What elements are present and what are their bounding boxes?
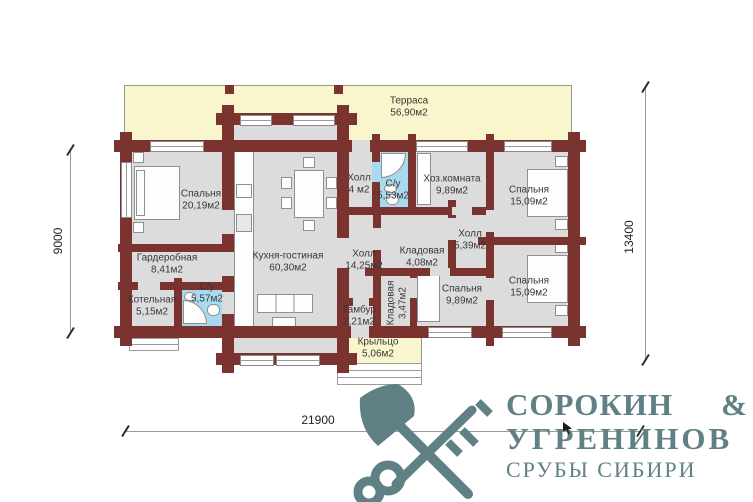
wall-segment xyxy=(118,244,234,252)
room-label-bath-2: С/у5,57м2 xyxy=(191,282,223,305)
window xyxy=(293,115,335,126)
room-label-vestibule: Тамбур2,21м2 xyxy=(342,305,376,328)
room-label-utility: Хоз.комната9,89м2 xyxy=(423,174,480,197)
stove-icon xyxy=(236,214,252,232)
door-opening xyxy=(410,278,417,298)
window xyxy=(428,327,472,338)
terrace-post xyxy=(334,85,343,94)
door-opening xyxy=(486,278,494,300)
sink-icon xyxy=(236,184,252,198)
nightstand-icon xyxy=(555,219,568,230)
room-label-bedroom-1: Спальня20,19м2 xyxy=(181,189,221,212)
door-opening xyxy=(138,282,160,290)
chair-icon xyxy=(326,177,337,189)
nightstand-icon xyxy=(133,222,144,233)
room-label-wardrobe: Гардеробная8,41м2 xyxy=(137,253,198,276)
room-label-kitchen-living: Кухня-гостиная60,30м2 xyxy=(253,251,324,274)
door-opening xyxy=(222,292,234,314)
room-label-bedroom-ne: Спальня15,09м2 xyxy=(509,185,549,208)
floor-plan-page: Терраса56,90м2 Спальня20,19м2 Гардеробна… xyxy=(0,0,753,502)
door-opening xyxy=(352,140,370,152)
dimension-label-left: 9000 xyxy=(51,228,65,255)
dining-table-icon xyxy=(294,170,324,218)
door-opening xyxy=(430,268,450,276)
chair-icon xyxy=(281,197,292,209)
room-label-storage-1: Кладовая4,08м2 xyxy=(400,246,445,269)
pillow-icon xyxy=(136,170,145,216)
dimension-line-right xyxy=(645,87,646,360)
room-label-storage-2: Кладовая3,47м2 xyxy=(386,281,409,326)
side-step xyxy=(129,344,179,351)
room-label-bedroom-989: Спальня9,89м2 xyxy=(442,284,482,307)
room-label-hall-5: Холл5,39м2 xyxy=(454,229,486,252)
bed-icon xyxy=(417,274,440,322)
axe-and-key-logo-icon xyxy=(342,382,507,502)
terrace-post xyxy=(225,85,234,94)
room-label-bedroom-se: Спальня15,09м2 xyxy=(509,276,549,299)
room-label-hall-14: Холл14,25м2 xyxy=(345,249,382,272)
sofa-icon xyxy=(257,294,313,313)
dimension-tick xyxy=(66,327,75,339)
nightstand-icon xyxy=(555,156,568,167)
door-opening xyxy=(373,228,381,250)
nightstand-icon xyxy=(555,305,568,316)
kitchen-counter-icon xyxy=(234,151,254,329)
chair-icon xyxy=(281,177,292,189)
window xyxy=(504,141,552,152)
nightstand-icon xyxy=(133,152,144,163)
brand-line-2: УГРЕНИНОВ xyxy=(506,422,748,456)
dimension-line-left xyxy=(70,150,71,333)
window xyxy=(150,141,204,152)
room-label-porch: Крыльцо5,06м2 xyxy=(358,337,399,360)
door-opening xyxy=(222,252,234,276)
window xyxy=(502,327,552,338)
window xyxy=(416,141,468,152)
wall-segment xyxy=(408,134,416,215)
brand-line-3: СРУБЫ СИБИРИ xyxy=(506,457,748,483)
brand-text: СОРОКИН & УГРЕНИНОВ СРУБЫ СИБИРИ xyxy=(506,388,748,483)
chair-icon xyxy=(326,197,337,209)
brand-name-1: СОРОКИН xyxy=(506,388,673,422)
wall-kitchen-west xyxy=(222,105,234,373)
wall-segment xyxy=(478,237,586,245)
wall-kitchen-north xyxy=(216,113,357,125)
brand-line-1: СОРОКИН & xyxy=(506,388,748,422)
door-opening xyxy=(222,210,234,234)
window xyxy=(240,115,272,126)
window xyxy=(240,355,274,366)
room-label-terrace: Терраса56,90м2 xyxy=(390,96,428,119)
room-label-bath-1: С/у5,53м2 xyxy=(377,179,409,202)
dimension-tick xyxy=(641,354,650,366)
chair-icon xyxy=(303,157,315,168)
door-opening xyxy=(486,210,494,232)
dimension-label-right: 13400 xyxy=(622,220,636,253)
toilet-icon xyxy=(207,304,220,316)
room-label-hall-4: Холл4 м2 xyxy=(347,173,371,196)
chair-icon xyxy=(303,220,315,231)
door-opening xyxy=(452,207,472,215)
window xyxy=(276,355,320,366)
brand-ampersand: & xyxy=(721,388,748,422)
dimension-label-bottom: 21900 xyxy=(301,413,334,427)
room-label-boiler: Котельная5,15м2 xyxy=(128,295,176,318)
window xyxy=(121,162,132,218)
